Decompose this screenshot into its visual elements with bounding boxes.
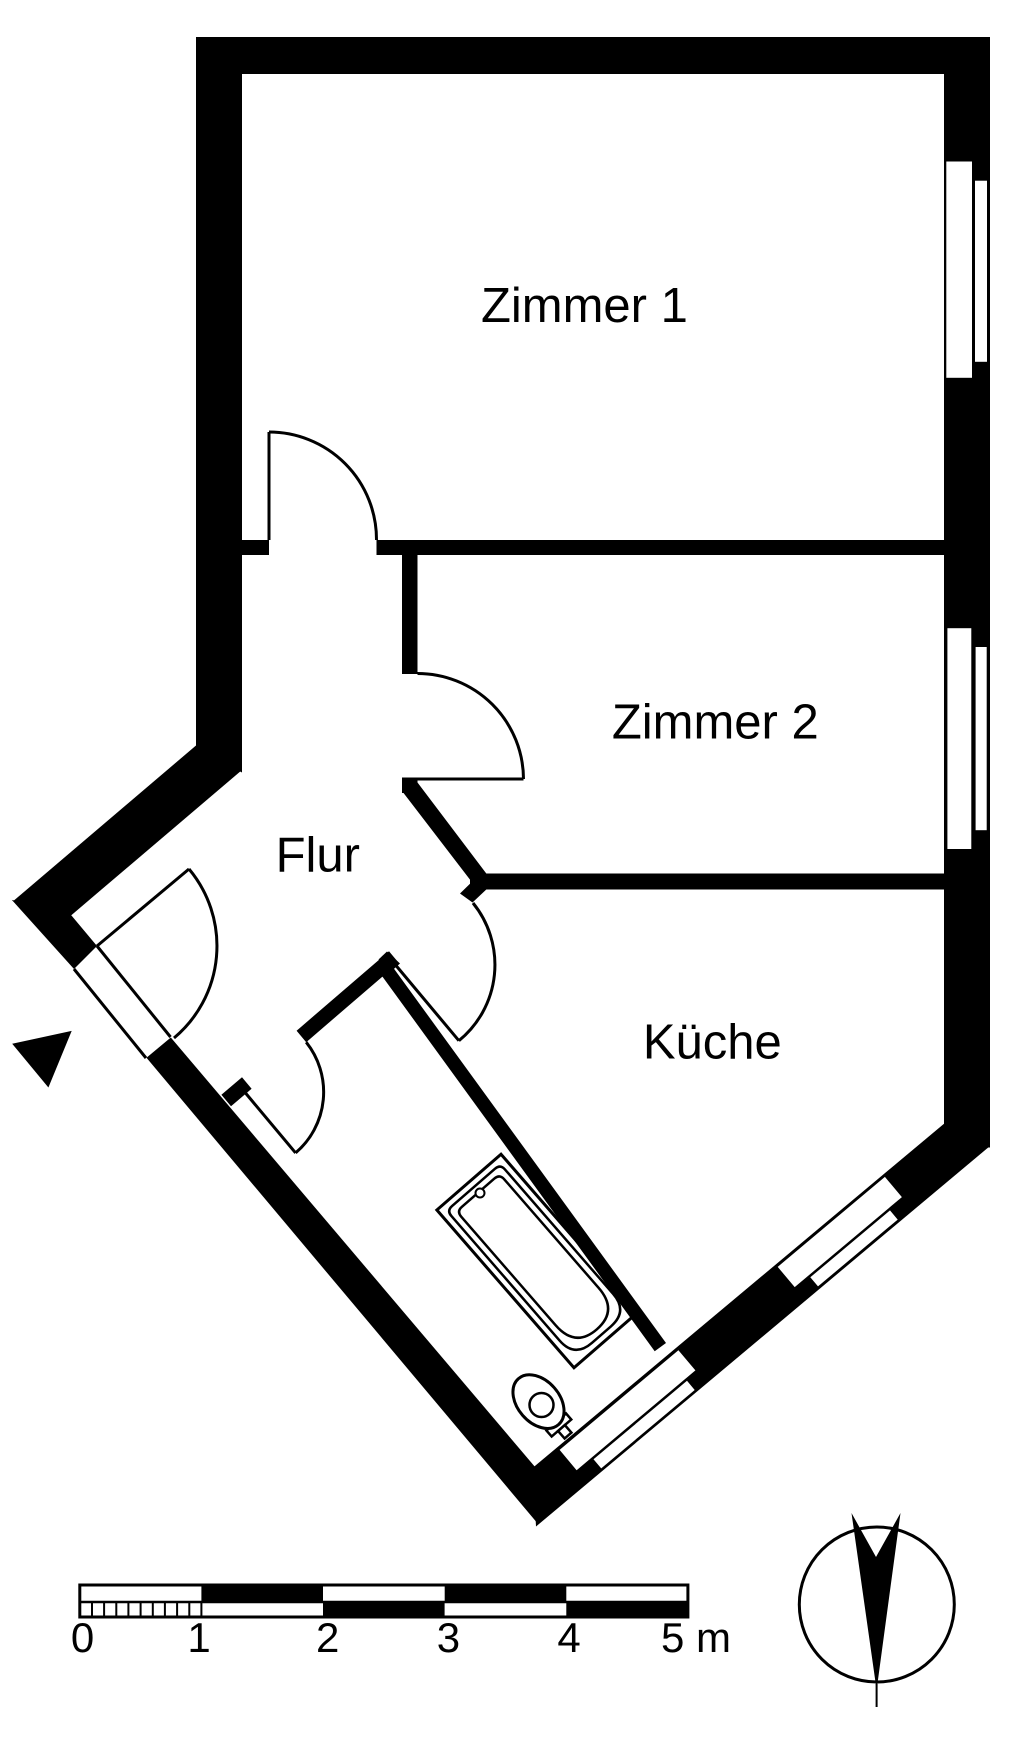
svg-text:Zimmer 2: Zimmer 2	[612, 696, 819, 750]
svg-text:Zimmer 1: Zimmer 1	[481, 279, 688, 333]
svg-text:5 m: 5 m	[661, 1614, 731, 1661]
svg-text:3: 3	[437, 1614, 460, 1661]
svg-text:4: 4	[557, 1614, 580, 1661]
svg-text:2: 2	[316, 1614, 339, 1661]
svg-text:Küche: Küche	[643, 1015, 782, 1069]
svg-text:Flur: Flur	[276, 828, 360, 882]
svg-text:1: 1	[187, 1614, 210, 1661]
svg-text:0: 0	[71, 1614, 94, 1661]
